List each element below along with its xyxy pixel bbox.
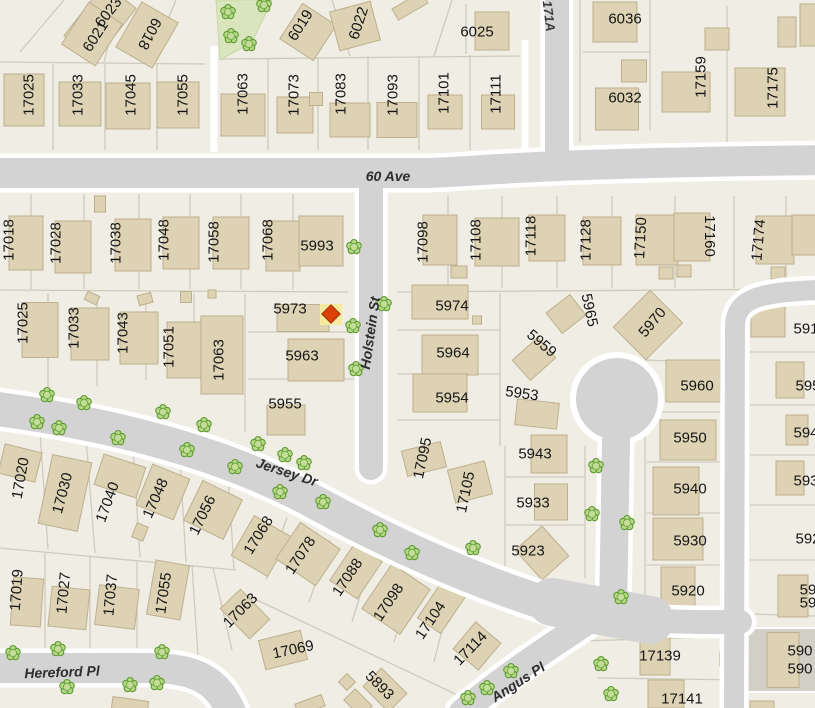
parcel-label: 17063 (234, 73, 251, 115)
tree-icon (257, 0, 272, 12)
parcel-label: 17051 (160, 326, 177, 368)
parcel-label: 17019 (7, 569, 27, 612)
building (95, 196, 106, 212)
parcel-label: 17118 (522, 216, 539, 257)
parcel-label: 5923 (511, 542, 544, 559)
parcel-label: 17068 (259, 219, 276, 261)
parcel-map-canvas[interactable]: 6023602160181702517033170451705560196022… (0, 0, 815, 708)
parcel-label: 17043 (114, 312, 131, 354)
building (659, 267, 673, 279)
parcel-label: 5920 (671, 582, 704, 599)
parcel-label: 17028 (47, 222, 64, 264)
parcel-label: 17093 (384, 74, 401, 116)
highlight-marker[interactable] (320, 304, 342, 325)
parcel-label: 591 (793, 320, 815, 337)
road-culdesac-stem (613, 440, 616, 612)
parcel-label: 17055 (174, 74, 191, 116)
parcel-label: 5950 (673, 429, 706, 446)
parcel-label: 17150 (631, 217, 650, 260)
parcel-label: 5955 (268, 395, 301, 412)
parcel-label: 5993 (300, 237, 333, 254)
building (778, 17, 796, 47)
parcel-label: 5930 (673, 532, 706, 549)
parcel-label: 17037 (100, 574, 121, 617)
parcel-label: 5964 (436, 344, 469, 361)
building (622, 60, 647, 82)
parcel-label: 17025 (14, 302, 31, 344)
parcel-label: 17175 (764, 67, 781, 109)
parcel-label: 595 (795, 377, 815, 394)
parcel-label: 592 (795, 530, 815, 547)
parcel-label: 5933 (516, 494, 549, 511)
parcel-label: 5973 (273, 300, 306, 317)
parcel-label: 6025 (460, 23, 493, 40)
building (771, 267, 785, 279)
parcel-label: 17033 (65, 307, 82, 349)
parcel-label: 5954 (435, 389, 468, 406)
parcel-label: 17141 (661, 690, 703, 707)
parcel-label: 6036 (608, 10, 641, 27)
building (792, 215, 815, 255)
building (208, 290, 216, 298)
parcel-label: 5940 (673, 480, 706, 497)
parcel-label: 17018 (0, 219, 17, 261)
parcel-label: 17108 (467, 219, 484, 261)
building (800, 4, 815, 46)
building (451, 266, 467, 278)
parcel-label: 17101 (435, 72, 452, 114)
parcel-label: 6032 (608, 89, 641, 106)
parcel-label: 17063 (210, 339, 227, 381)
parcel-label: 17025 (20, 74, 37, 116)
street-label: 60 Ave (366, 168, 411, 184)
parcel-label: 590 (787, 660, 812, 677)
street-label: Hereford Pl (24, 663, 101, 682)
parcel-label: 17027 (53, 572, 74, 615)
parcel-label: 17045 (122, 74, 139, 116)
parcel-label: 17139 (639, 647, 681, 664)
building (677, 265, 691, 277)
map-svg: 6023602160181702517033170451705560196022… (0, 0, 815, 708)
parcel-label: 17174 (748, 219, 769, 262)
parcel-label: 5963 (285, 347, 318, 364)
parcel-label: 17098 (414, 221, 431, 263)
parcel-label: 17159 (692, 56, 709, 98)
building (750, 701, 774, 708)
parcel-label: 17073 (285, 74, 302, 116)
parcel-label: 17058 (205, 221, 222, 263)
parcel-label: 59 (800, 594, 815, 611)
parcel-label: 17038 (107, 222, 124, 264)
parcel-label: 17128 (577, 219, 594, 261)
parcel-label: 5943 (518, 445, 551, 462)
parcel-label: 17111 (487, 74, 504, 114)
building (310, 93, 323, 106)
building (181, 292, 192, 303)
parcel-label: 590 (787, 642, 812, 659)
parcel-label: 593 (793, 472, 815, 489)
building (705, 28, 729, 50)
parcel-label: 17033 (69, 74, 86, 116)
parcel-label: 17048 (155, 219, 172, 261)
parcel-label: 17160 (701, 215, 718, 257)
parcel-label: 594 (793, 424, 815, 441)
parcel-label: 17083 (332, 73, 349, 115)
parcel-label: 5974 (435, 297, 468, 314)
building (473, 316, 482, 324)
parcel-label: 5960 (680, 377, 713, 394)
